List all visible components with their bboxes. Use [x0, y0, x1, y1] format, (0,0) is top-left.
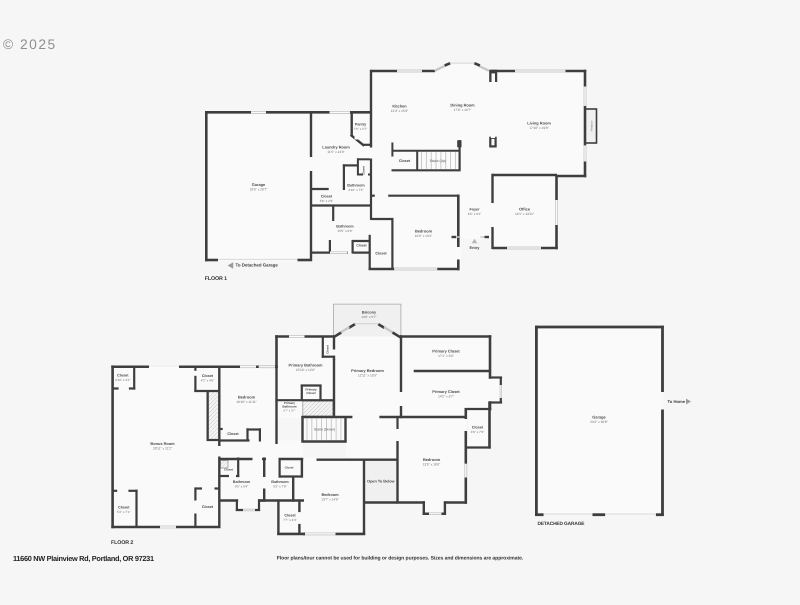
svg-text:Bedroom: Bedroom — [415, 229, 433, 234]
svg-text:Closet: Closet — [356, 244, 367, 248]
svg-text:Bathroom: Bathroom — [347, 184, 365, 188]
svg-text:Closet: Closet — [284, 514, 296, 518]
svg-text:© 2025: © 2025 — [3, 37, 57, 52]
svg-text:4'2" x 4'6": 4'2" x 4'6" — [201, 379, 215, 383]
svg-text:Closet: Closet — [472, 426, 484, 430]
svg-text:Living Room: Living Room — [527, 121, 551, 126]
svg-text:Bedroom: Bedroom — [238, 395, 256, 400]
svg-text:Stairs (Down): Stairs (Down) — [314, 427, 335, 431]
svg-text:13'7" x 14'5": 13'7" x 14'5" — [321, 498, 338, 502]
svg-text:Bathroom: Bathroom — [271, 480, 289, 484]
svg-text:Garage: Garage — [252, 182, 266, 187]
svg-text:Bathroom: Bathroom — [336, 225, 354, 229]
svg-text:10'10" x 11'11": 10'10" x 11'11" — [236, 400, 257, 404]
svg-text:Pantry: Pantry — [355, 123, 367, 127]
svg-text:24'2" x 36'8": 24'2" x 36'8" — [590, 420, 607, 424]
svg-text:Closet: Closet — [224, 468, 233, 472]
svg-text:Primary Bathroom: Primary Bathroom — [289, 363, 323, 368]
svg-text:Closet: Closet — [202, 374, 214, 378]
svg-text:4'10" x 7'5": 4'10" x 7'5" — [348, 188, 363, 192]
svg-text:FLOOR 1: FLOOR 1 — [205, 276, 227, 282]
svg-text:15'10" x 12'6": 15'10" x 12'6" — [296, 368, 315, 372]
svg-text:FLOOR 2: FLOOR 2 — [111, 540, 133, 546]
svg-text:Garage: Garage — [592, 415, 606, 420]
svg-text:7'7" x 4'3": 7'7" x 4'3" — [283, 518, 297, 522]
svg-text:6'5" x 8'1": 6'5" x 8'1" — [468, 212, 482, 216]
svg-text:4'10" x 4'2": 4'10" x 4'2" — [115, 378, 130, 382]
svg-text:Kitchen: Kitchen — [392, 104, 407, 109]
svg-text:14'1" x 13'11": 14'1" x 13'11" — [515, 212, 534, 216]
svg-text:Foyer: Foyer — [469, 208, 480, 212]
svg-text:17'6" x 16'7": 17'6" x 16'7" — [454, 108, 471, 112]
svg-text:To Detached Garage: To Detached Garage — [236, 263, 279, 268]
svg-text:Closet: Closet — [306, 391, 315, 395]
svg-text:Primary Bedroom: Primary Bedroom — [351, 368, 384, 373]
svg-text:Floor plans/tour cannot be use: Floor plans/tour cannot be used for buil… — [277, 556, 524, 562]
svg-text:15'5" x 6'9": 15'5" x 6'9" — [337, 229, 352, 233]
svg-text:4'7" x 3'7": 4'7" x 3'7" — [283, 409, 295, 413]
svg-text:Closet: Closet — [361, 166, 365, 175]
svg-text:12'11" x 15'9": 12'11" x 15'9" — [358, 374, 377, 378]
svg-text:9'3" x 7'8": 9'3" x 7'8" — [273, 485, 287, 489]
svg-text:Closet: Closet — [399, 159, 411, 163]
svg-text:14'2" x 6'7": 14'2" x 6'7" — [438, 395, 454, 399]
svg-text:Closet: Closet — [321, 195, 333, 199]
svg-text:7'5" x 5'7": 7'5" x 5'7" — [354, 127, 368, 131]
svg-text:Primary Closet: Primary Closet — [432, 389, 460, 394]
svg-text:Dining Room: Dining Room — [450, 102, 475, 107]
svg-text:4'6" x 7'9": 4'6" x 7'9" — [471, 430, 485, 434]
svg-text:11'5" x 14'9": 11'5" x 14'9" — [327, 150, 344, 154]
svg-text:Office: Office — [519, 207, 531, 212]
svg-text:13'6" x 5'7": 13'6" x 5'7" — [361, 315, 376, 319]
svg-text:Open To Below: Open To Below — [367, 480, 394, 484]
svg-text:Closet: Closet — [118, 506, 130, 510]
svg-text:5'6" x 2'9": 5'6" x 2'9" — [320, 199, 334, 203]
svg-text:17'10" x 19'8": 17'10" x 19'8" — [529, 126, 548, 130]
svg-text:11660 NW Plainview Rd, Portlan: 11660 NW Plainview Rd, Portland, OR 9723… — [13, 554, 154, 563]
svg-text:17'1" x 6'6": 17'1" x 6'6" — [438, 354, 454, 358]
svg-text:Bedroom: Bedroom — [321, 492, 339, 497]
svg-text:5'2" x 7'1": 5'2" x 7'1" — [117, 510, 131, 514]
svg-text:Closet: Closet — [325, 345, 329, 354]
svg-text:12'4" x 15'3": 12'4" x 15'3" — [391, 109, 408, 113]
svg-text:Bathroom: Bathroom — [233, 480, 251, 484]
svg-text:28'11" x 21'2": 28'11" x 21'2" — [153, 447, 172, 451]
svg-text:Entry: Entry — [470, 245, 481, 250]
svg-text:Stairs (Up): Stairs (Up) — [430, 159, 447, 163]
svg-text:16'9" x 13'1": 16'9" x 13'1" — [415, 234, 432, 238]
svg-text:Closet: Closet — [202, 505, 214, 509]
svg-text:Closet: Closet — [285, 466, 294, 470]
svg-text:To Home: To Home — [668, 399, 686, 404]
svg-text:9'5" x 9'4": 9'5" x 9'4" — [235, 485, 249, 489]
svg-text:Primary Closet: Primary Closet — [432, 349, 460, 354]
svg-text:Balcony: Balcony — [362, 311, 377, 315]
svg-text:Fireplace: Fireplace — [591, 120, 594, 131]
svg-text:Bonus Room: Bonus Room — [150, 441, 175, 446]
svg-text:Bedroom: Bedroom — [423, 457, 441, 462]
svg-text:DETACHED GARAGE: DETACHED GARAGE — [538, 521, 586, 527]
svg-text:Closet: Closet — [227, 432, 239, 436]
svg-text:29'5" x 28'7": 29'5" x 28'7" — [250, 188, 267, 192]
svg-text:Closet: Closet — [117, 374, 129, 378]
svg-text:13'5" x 18'6": 13'5" x 18'6" — [423, 463, 440, 467]
svg-text:Laundry Room: Laundry Room — [322, 145, 350, 150]
svg-text:Closet: Closet — [375, 252, 387, 256]
